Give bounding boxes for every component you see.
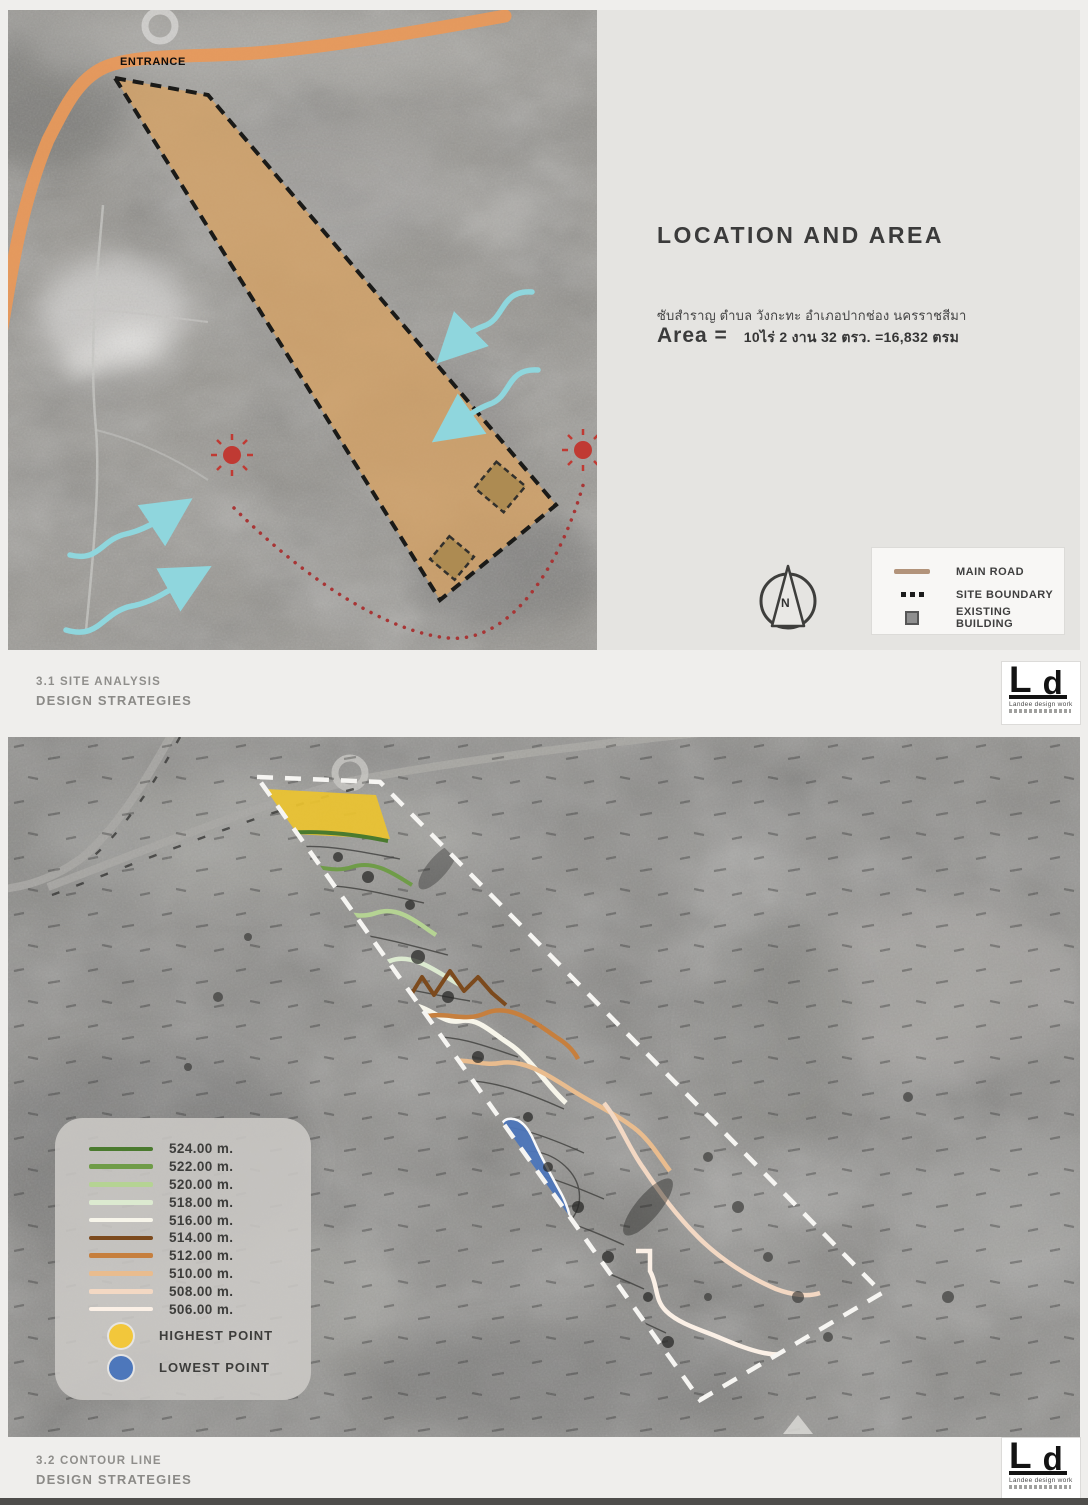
legend-row-site-boundary: SITE BOUNDARY (890, 583, 1064, 606)
ld-logo-mark: Ld (1009, 1442, 1067, 1475)
contour-color-swatch (89, 1271, 153, 1276)
lowest-point-dot (109, 1356, 133, 1380)
contour-legend-row: 508.00 m. (55, 1282, 311, 1300)
footer-contour-line: 3.2 CONTOUR LINE DESIGN STRATEGIES Ld La… (8, 1437, 1080, 1498)
area-label: Area = (657, 324, 728, 348)
main-road-swatch (890, 569, 934, 574)
logo-tagline: Landee design work (1009, 701, 1075, 708)
logo-letter-d: d (1043, 671, 1063, 695)
legend-label: MAIN ROAD (956, 566, 1024, 578)
contour-elevation-label: 512.00 m. (169, 1248, 233, 1263)
location-and-area-board: ENTRANCE LOCATION AND AREA ซับสำราญ ตำบล… (8, 10, 1080, 650)
contour-elevation-label: 522.00 m. (169, 1159, 233, 1174)
entrance-label: ENTRANCE (120, 56, 186, 68)
contour-legend-row: 518.00 m. (55, 1193, 311, 1211)
lowest-point-row: LOWEST POINT (55, 1354, 311, 1382)
contour-legend-row: 514.00 m. (55, 1229, 311, 1247)
contour-color-swatch (89, 1164, 153, 1169)
logo-tagline-fine (1009, 1485, 1071, 1489)
area-value: 10ไร่ 2 งาน 32 ตรว. =16,832 ตรม (744, 327, 959, 349)
highest-point-row: HIGHEST POINT (55, 1322, 311, 1350)
contour-legend-row: 520.00 m. (55, 1176, 311, 1194)
contour-color-swatch (89, 1200, 153, 1205)
section-number-title: 3.1 SITE ANALYSIS (36, 676, 161, 688)
contour-line-board: 524.00 m. 522.00 m. 520.00 m. 518.00 m. … (8, 737, 1080, 1437)
legend-label: EXISTING BUILDING (956, 606, 1064, 630)
area-line: Area = 10ไร่ 2 งาน 32 ตรว. =16,832 ตรม (657, 324, 959, 349)
legend-row-existing-building: EXISTING BUILDING (890, 606, 1064, 629)
contour-color-swatch (89, 1182, 153, 1187)
existing-building-swatch (890, 611, 934, 625)
contour-elevation-label: 518.00 m. (169, 1195, 233, 1210)
logo-letter-d: d (1043, 1447, 1063, 1471)
point-label: LOWEST POINT (159, 1360, 270, 1375)
contour-legend: 524.00 m. 522.00 m. 520.00 m. 518.00 m. … (55, 1118, 311, 1400)
contour-elevation-label: 510.00 m. (169, 1266, 233, 1281)
contour-elevation-label: 508.00 m. (169, 1284, 233, 1299)
contour-legend-row: 512.00 m. (55, 1247, 311, 1265)
legend-label: SITE BOUNDARY (956, 589, 1053, 601)
contour-legend-row: 516.00 m. (55, 1211, 311, 1229)
highest-point-dot (109, 1324, 133, 1348)
page-bottom-border (0, 1498, 1088, 1505)
logo-letter-l: L (1009, 666, 1032, 695)
location-info-panel: LOCATION AND AREA ซับสำราญ ตำบล วังกะทะ … (597, 10, 1080, 650)
aerial-site-map: ENTRANCE (8, 10, 597, 650)
map-legend: MAIN ROAD SITE BOUNDARY EXISTING BUILDIN… (872, 548, 1064, 634)
footer-site-analysis: 3.1 SITE ANALYSIS DESIGN STRATEGIES Ld L… (8, 650, 1080, 737)
contour-color-swatch (89, 1253, 153, 1258)
section-subtitle: DESIGN STRATEGIES (36, 1472, 192, 1487)
contour-legend-row: 522.00 m. (55, 1158, 311, 1176)
contour-color-swatch (89, 1218, 153, 1223)
ld-logo: Ld Landee design work (1002, 662, 1080, 724)
contour-elevation-label: 506.00 m. (169, 1302, 233, 1317)
contour-elevation-label: 514.00 m. (169, 1230, 233, 1245)
contour-elevation-label: 520.00 m. (169, 1177, 233, 1192)
contour-color-swatch (89, 1236, 153, 1241)
logo-tagline-fine (1009, 709, 1071, 713)
ld-logo: Ld Landee design work (1002, 1438, 1080, 1500)
site-boundary-swatch (890, 592, 934, 597)
contour-color-swatch (89, 1147, 153, 1152)
contour-legend-row: 510.00 m. (55, 1265, 311, 1283)
point-label: HIGHEST POINT (159, 1328, 273, 1343)
site-analysis-map-graphic (8, 10, 597, 650)
contour-elevation-label: 524.00 m. (169, 1141, 233, 1156)
legend-row-main-road: MAIN ROAD (890, 560, 1064, 583)
contour-color-swatch (89, 1307, 153, 1312)
contour-color-swatch (89, 1289, 153, 1294)
site-address: ซับสำราญ ตำบล วังกะทะ อำเภอปากช่อง นครรา… (657, 305, 967, 326)
contour-legend-row: 524.00 m. (55, 1140, 311, 1158)
contour-elevation-label: 516.00 m. (169, 1213, 233, 1228)
logo-tagline: Landee design work (1009, 1477, 1075, 1484)
north-letter: N (781, 596, 790, 610)
section-number-title: 3.2 CONTOUR LINE (36, 1455, 162, 1467)
ld-logo-mark: Ld (1009, 666, 1067, 699)
logo-letter-l: L (1009, 1442, 1032, 1471)
contour-legend-row: 506.00 m. (55, 1300, 311, 1318)
section-subtitle: DESIGN STRATEGIES (36, 693, 192, 708)
north-arrow-icon: N (755, 560, 821, 634)
page-title: LOCATION AND AREA (657, 222, 944, 249)
